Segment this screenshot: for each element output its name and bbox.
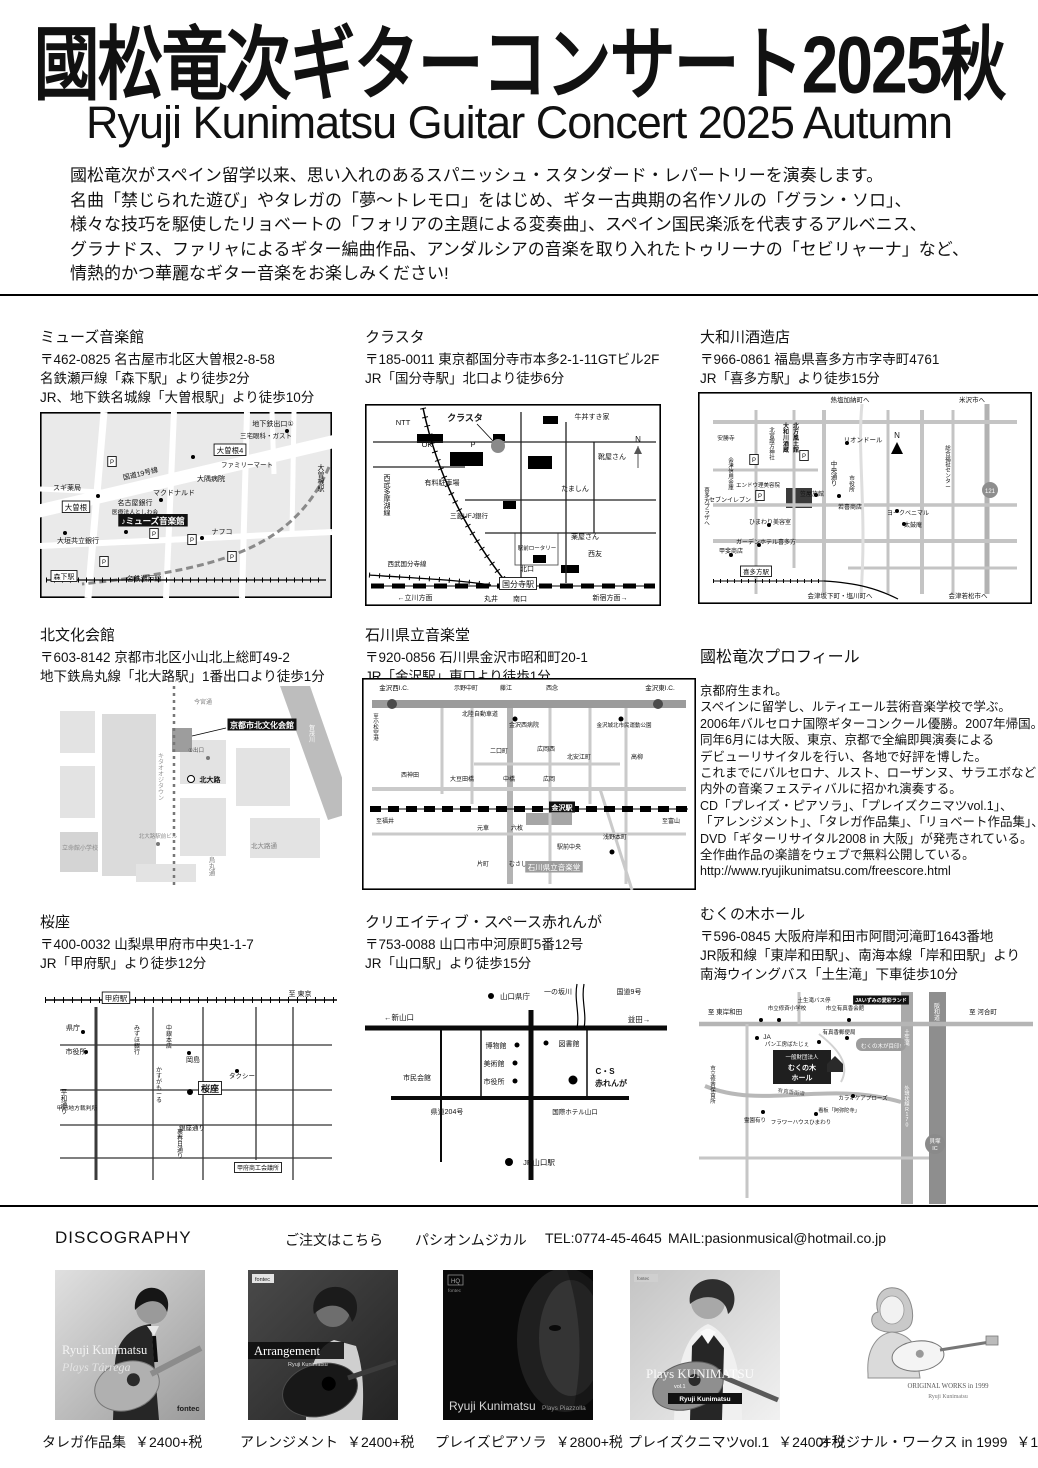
svg-text:むくの木: むくの木 — [788, 1063, 817, 1072]
svg-text:市役所: 市役所 — [484, 1077, 505, 1086]
svg-text:名鉄瀬戸線: 名鉄瀬戸線 — [127, 574, 162, 583]
svg-text:六枚: 六枚 — [511, 824, 523, 832]
svg-text:OK: OK — [422, 440, 433, 449]
svg-text:安勝寺: 安勝寺 — [717, 434, 735, 442]
venue-access: JR、地下鉄名城線「大曽根駅」より徒歩10分 — [40, 388, 355, 407]
svg-text:熱塩加納町へ: 熱塩加納町へ — [831, 395, 871, 404]
svg-text:北大路通: 北大路通 — [251, 841, 278, 850]
svg-text:牛丼すき家: 牛丼すき家 — [575, 412, 610, 421]
svg-text:北陸自動車道: 北陸自動車道 — [462, 710, 498, 718]
svg-text:♪ミューズ音楽館: ♪ミューズ音楽館 — [121, 516, 185, 526]
map-clasta: NTTクラスタ牛丼すき家OKP靴屋さんN有料駐車場たましん西武多摩湖線三菱UFJ… — [365, 404, 661, 606]
svg-text:喜多方駅: 喜多方駅 — [743, 567, 770, 576]
cd-title: タレガ作品集 — [42, 1434, 126, 1450]
cover-artist: Ryuji Kunimatsu — [62, 1343, 148, 1357]
svg-text:金沢西病院: 金沢西病院 — [509, 721, 539, 729]
svg-text:今宮通: 今宮通 — [194, 698, 212, 706]
svg-text:スギ薬局: スギ薬局 — [53, 483, 81, 492]
svg-text:山口県庁: 山口県庁 — [500, 991, 530, 1001]
svg-text:看板「阿弥陀寺」: 看板「阿弥陀寺」 — [818, 1106, 860, 1114]
svg-text:南口: 南口 — [513, 594, 527, 603]
svg-text:一般財団法人: 一般財団法人 — [785, 1053, 819, 1061]
cd-price: ￥2400+税 — [347, 1434, 414, 1450]
svg-text:市民会館: 市民会館 — [403, 1073, 431, 1082]
svg-text:至 東京: 至 東京 — [289, 989, 312, 998]
intro-paragraph: 國松竜次がスペイン留学以来、思い入れのあるスパニッシュ・スタンダード・レパートリ… — [70, 164, 969, 287]
svg-text:市役所: 市役所 — [66, 1047, 87, 1056]
svg-text:会津若松市へ: 会津若松市へ — [949, 591, 989, 600]
profile-line: 同年6月には大阪、東京、京都で全編即興演奏による — [700, 732, 1038, 748]
svg-text:駅前中央: 駅前中央 — [557, 843, 581, 851]
svg-text:エンドウ理美容院: エンドウ理美容院 — [736, 481, 781, 489]
cd-caption: プレイズクニマツvol.1￥2400+税 — [628, 1432, 845, 1452]
svg-text:岡島: 岡島 — [186, 1055, 200, 1064]
intro-line: 様々な技巧を駆使したリョベートの「フォリアの主題による変奏曲」、スペイン国民楽派… — [70, 213, 969, 238]
cd-caption: プレイズピアソラ￥2800+税 — [435, 1432, 623, 1452]
svg-text:パン工房ばたじぇ: パン工房ばたじぇ — [765, 1040, 809, 1048]
profile-section: 國松竜次プロフィール 京都府生まれ。 スペインに留学し、ルティエール芸術音楽学校… — [700, 643, 1038, 880]
svg-text:IC: IC — [932, 1146, 938, 1152]
svg-text:ひまわり美容室: ひまわり美容室 — [749, 518, 791, 526]
svg-text:国際ホテル山口: 国際ホテル山口 — [552, 1107, 598, 1116]
profile-line: これまでにバルセロナ、ルスト、ローザンヌ、サラエボなど — [700, 765, 1038, 781]
cover-title: Plays Piazzolla — [542, 1405, 586, 1412]
svg-text:一の坂川: 一の坂川 — [544, 987, 572, 996]
svg-text:フラワーハウスひまわり: フラワーハウスひまわり — [771, 1118, 831, 1126]
svg-text:至 東岸和田: 至 東岸和田 — [708, 1007, 742, 1016]
svg-text:カラオケアプローズ: カラオケアプローズ — [838, 1094, 888, 1102]
svg-text:ファミリーマート: ファミリーマート — [221, 461, 273, 469]
cover-artist: Ryuji Kunimatsu — [679, 1396, 730, 1403]
venue-name: クラスタ — [365, 326, 680, 347]
svg-text:至小松空港: 至小松空港 — [373, 713, 379, 742]
tel-text: TEL:0774-45-4645 — [545, 1230, 662, 1246]
svg-text:土生滝バス停: 土生滝バス停 — [797, 996, 831, 1004]
divider-bottom — [0, 1205, 1038, 1207]
svg-text:有料駐車場: 有料駐車場 — [425, 478, 460, 487]
svg-text:三菱UFJ銀行: 三菱UFJ銀行 — [450, 511, 488, 520]
venue-access: JR「山口駅」より徒歩15分 — [365, 954, 680, 973]
cd-cover-original-works: ORIGINAL WORKS in 1999 Ryuji Kunimatsu — [820, 1270, 1010, 1420]
intro-line: グラナドス、ファリャによるギター編曲作品、アンダルシアの音楽を取り入れたトゥリー… — [70, 238, 969, 263]
svg-text:マクドナルド: マクドナルド — [153, 489, 195, 497]
svg-text:北安江町: 北安江町 — [567, 753, 591, 761]
svg-text:至 河合町: 至 河合町 — [969, 1007, 997, 1016]
svg-text:セブンイレブン: セブンイレブン — [709, 496, 751, 504]
svg-text:タクシー: タクシー — [229, 1071, 255, 1080]
svg-text:立命館小学校: 立命館小学校 — [62, 844, 98, 852]
svg-text:N: N — [635, 435, 641, 444]
venue-ishikawa-ongakudo: 石川県立音楽堂 〒920-0856 石川県金沢市昭和町20-1 JR「金沢駅」東… — [365, 624, 680, 686]
svg-text:甲府地方裁判所: 甲府地方裁判所 — [57, 1104, 98, 1112]
svg-text:P: P — [230, 555, 234, 561]
svg-text:元車: 元車 — [477, 824, 489, 832]
svg-text:西友: 西友 — [588, 549, 602, 558]
svg-text:大和川酒蔵: 大和川酒蔵 — [782, 422, 789, 454]
venue-name: 石川県立音楽堂 — [365, 624, 680, 645]
cd-cover-plays-tarrega: Ryuji Kunimatsu Plays Tárrega fontec — [55, 1270, 205, 1420]
svg-text:国分寺駅: 国分寺駅 — [502, 580, 534, 589]
svg-text:至富山: 至富山 — [662, 817, 680, 825]
svg-text:北方風土館: 北方風土館 — [792, 422, 799, 454]
svg-text:金沢城北市民運動公園: 金沢城北市民運動公園 — [596, 721, 652, 729]
svg-text:P: P — [752, 458, 756, 464]
cover-title: Arrangement — [254, 1344, 320, 1358]
venue-name: 桜座 — [40, 911, 355, 932]
svg-text:二口町: 二口町 — [490, 748, 508, 755]
profile-line: 京都府生まれ。 — [700, 683, 1038, 699]
svg-text:博物館: 博物館 — [486, 1041, 507, 1050]
venue-access: JR阪和線「東岸和田駅」、南海本線「岸和田駅」より — [700, 946, 1038, 965]
cd-title: アレンジメント — [240, 1434, 338, 1450]
svg-text:県道204号: 県道204号 — [431, 1107, 464, 1116]
svg-text:JA: JA — [763, 1034, 771, 1041]
venue-address: 〒462-0825 名古屋市北区大曽根2-8-58 — [40, 350, 355, 369]
svg-text:賀茂川: 賀茂川 — [309, 724, 315, 744]
svg-text:喜多方プラザへ: 喜多方プラザへ — [704, 486, 710, 527]
discography-heading: DISCOGRAPHY — [55, 1228, 192, 1248]
cover-artist: Ryuji Kunimatsu — [288, 1362, 328, 1368]
svg-text:北大路: 北大路 — [200, 775, 222, 784]
fontec-logo: fontec — [448, 1288, 462, 1294]
svg-text:大垣共立銀行: 大垣共立銀行 — [57, 536, 99, 545]
fontec-logo: fontec — [637, 1276, 650, 1281]
svg-text:むさし: むさし — [509, 861, 527, 868]
svg-text:石川県立音楽堂: 石川県立音楽堂 — [528, 862, 581, 872]
svg-text:←立川方面: ←立川方面 — [398, 593, 433, 602]
fontec-logo: fontec — [177, 1404, 200, 1413]
svg-text:P: P — [102, 560, 106, 566]
svg-text:P: P — [190, 538, 194, 544]
svg-text:地下鉄出口①: 地下鉄出口① — [252, 419, 293, 428]
venue-address: 〒603-8142 京都市北区小山北上総町49-2 — [40, 648, 355, 667]
venue-access: JR「喜多方駅」より徒歩15分 — [700, 369, 1035, 388]
svg-text:市立修斉小学校: 市立修斉小学校 — [768, 1004, 807, 1012]
svg-text:JAいずみの愛彩ランド: JAいずみの愛彩ランド — [855, 997, 906, 1004]
svg-text:総合福祉センター: 総合福祉センター — [945, 444, 951, 491]
svg-text:クラスタ: クラスタ — [447, 412, 483, 423]
svg-text:キタオオジタウン: キタオオジタウン — [158, 754, 164, 802]
venue-access: 地下鉄烏丸線「北大路駅」1番出口より徒歩1分 — [40, 667, 355, 686]
cover-title: ORIGINAL WORKS in 1999 — [908, 1383, 990, 1390]
svg-text:P: P — [470, 440, 475, 449]
svg-text:西神田: 西神田 — [401, 771, 419, 779]
svg-text:北口: 北口 — [520, 565, 534, 573]
venue-name: 北文化会館 — [40, 624, 355, 645]
svg-text:P: P — [152, 532, 156, 538]
svg-text:桜座: 桜座 — [201, 1083, 219, 1094]
cd-title: オリジナル・ワークス in 1999 — [818, 1434, 1007, 1450]
fontec-logo: fontec — [255, 1277, 270, 1283]
venue-name: むくの木ホール — [700, 903, 1038, 924]
divider-top — [0, 294, 1038, 296]
profile-line: 「アレンジメント」、「タレガ作品集」、「リョベート作品集」、 — [700, 814, 1038, 830]
venue-address: 〒400-0032 山梨県甲府市中央1-1-7 — [40, 935, 355, 954]
intro-line: 名曲「禁じられた遊び」やタレガの「夢〜トレモロ」をはじめ、ギター古典期の名作ソル… — [70, 189, 969, 214]
svg-text:みずほ銀行: みずほ銀行 — [134, 1025, 140, 1056]
svg-text:リオンドール: リオンドール — [844, 436, 884, 444]
venue-kita-bunka: 北文化会館 〒603-8142 京都市北区小山北上総町49-2 地下鉄烏丸線「北… — [40, 624, 355, 686]
venue-akarenga: クリエイティブ・スペース赤れんが 〒753-0088 山口市中河原町5番12号 … — [365, 911, 680, 973]
svg-text:烏丸通: 烏丸通 — [209, 855, 216, 877]
svg-text:P: P — [110, 460, 114, 466]
svg-text:米沢市へ: 米沢市へ — [959, 395, 986, 404]
svg-text:藤江: 藤江 — [500, 684, 512, 692]
svg-text:C・S: C・S — [595, 1067, 615, 1076]
svg-text:示野中町: 示野中町 — [454, 684, 478, 692]
svg-text:金沢東I.C.: 金沢東I.C. — [645, 683, 675, 692]
svg-text:市役所: 市役所 — [849, 474, 855, 494]
svg-text:大豆田橋: 大豆田橋 — [450, 775, 474, 783]
svg-text:会津信用金庫: 会津信用金庫 — [728, 456, 734, 492]
svg-text:土生滝: 土生滝 — [904, 1028, 910, 1047]
svg-text:有真香郵便局: 有真香郵便局 — [822, 1028, 855, 1036]
map-sakuraza: 甲府駅至 東京県庁市役所みずほ銀行中銀本店岡島かすがもーるタクシー桜座平和通り甲… — [40, 982, 342, 1186]
svg-text:中央通り: 中央通り — [831, 459, 838, 488]
svg-text:大曽根4: 大曽根4 — [217, 445, 244, 455]
cd-price: ￥2400+税 — [135, 1434, 202, 1450]
svg-text:若喜商店: 若喜商店 — [838, 503, 862, 511]
venue-address: 〒185-0011 東京都国分寺市本多2-1-11GTビル2F — [365, 350, 680, 369]
svg-text:裏春日通り: 裏春日通り — [177, 1128, 183, 1160]
cd-caption: アレンジメント￥2400+税 — [240, 1432, 414, 1452]
map-muse: 地下鉄出口①三宅眼科・ガスト大曽根4大曽根駅ファミリーマート国道19号線大隅病院… — [40, 412, 332, 598]
intro-line: 情熱的かつ華麗なギター音楽をお楽しみください! — [70, 262, 969, 287]
venue-muse: ミューズ音楽館 〒462-0825 名古屋市北区大曽根2-8-58 名鉄瀬戸線「… — [40, 326, 355, 407]
svg-text:至福井: 至福井 — [376, 817, 394, 825]
svg-text:京都市北文化会館: 京都市北文化会館 — [230, 720, 294, 730]
map-kita-bunka: 今宮通京都市北文化会館①出口北大路キタオオジタウン立命館小学校北大路駅前ビル北大… — [40, 686, 342, 888]
svg-text:金沢駅: 金沢駅 — [551, 803, 574, 812]
svg-text:阪和道: 阪和道 — [934, 1002, 940, 1022]
svg-text:大曽根駅: 大曽根駅 — [318, 463, 325, 493]
eye — [549, 1325, 561, 1331]
flyer-page: { "header": { "title_ja": "國松竜次ギターコンサート2… — [0, 0, 1038, 1468]
cd-title: プレイズクニマツvol.1 — [628, 1434, 769, 1450]
svg-text:大隅病院: 大隅病院 — [197, 474, 225, 483]
cover-title: Plays Tárrega — [61, 1360, 131, 1374]
cover-subtitle: vol.1 — [674, 1384, 686, 1390]
map-akarenga: 山口県庁一の坂川国道9号←新山口益田→博物館図書館美術館市役所市民会館C・S赤れ… — [365, 982, 667, 1186]
svg-text:丸井: 丸井 — [484, 594, 498, 603]
venue-mukunoki: むくの木ホール 〒596-0845 大阪府岸和田市阿間河滝町1643番地 JR阪… — [700, 903, 1038, 984]
svg-text:美術館: 美術館 — [484, 1059, 505, 1068]
svg-text:西武多摩湖線: 西武多摩湖線 — [384, 474, 391, 517]
svg-text:121: 121 — [985, 489, 996, 495]
venue-access: JR「国分寺駅」北口より徒歩6分 — [365, 369, 680, 388]
profile-line: 内外の音楽フェスティバルに招かれ演奏する。 — [700, 781, 1038, 797]
cd-caption: オリジナル・ワークス in 1999￥1000 — [818, 1432, 1038, 1452]
svg-text:県庁: 県庁 — [66, 1023, 80, 1032]
map-ishikawa-ongakudo: 金沢西I.C.示野中町藤江西念金沢東I.C.北陸自動車道金沢西病院金沢城北市民運… — [362, 678, 696, 890]
cd-price: ￥2800+税 — [556, 1434, 623, 1450]
cd-title: プレイズピアソラ — [435, 1434, 547, 1450]
cd-caption: タレガ作品集￥2400+税 — [42, 1432, 202, 1452]
svg-text:薬屋さん: 薬屋さん — [571, 532, 599, 541]
svg-text:北宮諏方神社: 北宮諏方神社 — [769, 426, 775, 462]
svg-text:P: P — [758, 494, 762, 500]
profile-url: http://www.ryujikunimatsu.com/freescore.… — [700, 863, 1038, 879]
svg-text:甲斐商店: 甲斐商店 — [719, 547, 743, 555]
svg-text:ナフコ: ナフコ — [212, 528, 233, 536]
venue-clasta: クラスタ 〒185-0011 東京都国分寺市本多2-1-11GTビル2F JR「… — [365, 326, 680, 388]
venue-access: 名鉄瀬戸線「森下駅」より徒歩2分 — [40, 369, 355, 388]
venue-access: 南海ウイングバス「土生滝」下車徒歩10分 — [700, 965, 1038, 984]
venue-sakuraza: 桜座 〒400-0032 山梨県甲府市中央1-1-7 JR「甲府駅」より徒歩12… — [40, 911, 355, 973]
svg-text:西念: 西念 — [546, 684, 558, 692]
cover-artist: Ryuji Kunimatsu — [449, 1399, 536, 1413]
svg-text:市立有真香会館: 市立有真香会館 — [826, 1004, 865, 1012]
svg-text:ヨークベニマル: ヨークベニマル — [887, 510, 929, 517]
map-yamatogawa: 熱塩加納町へ米沢市へ安勝寺北宮諏方神社大和川酒蔵北方風土館リオンドールN総合福祉… — [698, 392, 1032, 604]
profile-line: DVD「ギターリサイタル2008 in 大阪」が発売されている。 — [700, 831, 1038, 847]
cover-title: Plays KUNIMATSU — [646, 1366, 755, 1381]
svg-text:ガーデンホテル喜多方: ガーデンホテル喜多方 — [736, 538, 796, 546]
svg-text:たましん: たましん — [561, 485, 589, 493]
profile-line: デビューリサイタルを行い、各地で好評を博した。 — [700, 749, 1038, 765]
venue-name: 大和川酒造店 — [700, 326, 1035, 347]
venue-address: 〒966-0861 福島県喜多方市字寺町4761 — [700, 350, 1035, 369]
cover-artist: Ryuji Kunimatsu — [928, 1394, 968, 1400]
mail-text: MAIL:pasionmusical@hotmail.co.jp — [668, 1230, 886, 1246]
svg-text:太鼓庵: 太鼓庵 — [904, 521, 922, 529]
cd-cover-plays-piazzolla: HQ fontec Ryuji Kunimatsu Plays Piazzoll… — [443, 1270, 593, 1420]
svg-text:貝塚: 貝塚 — [929, 1137, 941, 1145]
svg-text:霊園有り: 霊園有り — [744, 1116, 766, 1124]
svg-text:広岡西: 広岡西 — [537, 745, 555, 753]
profile-title: 國松竜次プロフィール — [700, 643, 1038, 667]
svg-text:NTT: NTT — [396, 418, 411, 427]
cd-cover-plays-kunimatsu: Plays KUNIMATSU vol.1 Ryuji Kunimatsu fo… — [630, 1270, 780, 1420]
svg-text:片町: 片町 — [477, 860, 489, 868]
profile-line: CD「プレイズ・ピアソラ」、「プレイズクニマツvol.1」、 — [700, 798, 1038, 814]
venue-yamatogawa: 大和川酒造店 〒966-0861 福島県喜多方市字寺町4761 JR「喜多方駅」… — [700, 326, 1035, 388]
venue-address: 〒596-0845 大阪府岸和田市阿間河滝町1643番地 — [700, 927, 1038, 946]
svg-text:名古屋銀行: 名古屋銀行 — [118, 498, 153, 507]
svg-text:JR山口駅: JR山口駅 — [523, 1157, 555, 1167]
page-subtitle-en: Ryuji Kunimatsu Guitar Concert 2025 Autu… — [0, 97, 1038, 149]
svg-text:会津坂下町・塩川町へ: 会津坂下町・塩川町へ — [808, 591, 874, 600]
map-mukunoki: 至 東岸和田JA市立修斉小学校市立有真香会館有真香郵便局パン工房ばたじぇ土生滝バ… — [699, 992, 1033, 1204]
svg-text:駅前ロータリー: 駅前ロータリー — [518, 544, 557, 552]
svg-text:むくの木が目印!: むくの木が目印! — [861, 1042, 902, 1050]
svg-text:甲府駅: 甲府駅 — [105, 993, 128, 1003]
svg-text:益田→: 益田→ — [628, 1014, 651, 1024]
profile-line: スペインに留学し、ルティエール芸術音楽学校で学ぶ。 — [700, 699, 1038, 715]
svg-text:三宅眼科・ガスト: 三宅眼科・ガスト — [240, 431, 292, 440]
svg-text:市立修斉保育所: 市立修斉保育所 — [710, 1064, 716, 1105]
svg-text:大曽根: 大曽根 — [65, 502, 88, 512]
order-label: ご注文はこちら — [285, 1230, 383, 1250]
svg-text:新宿方面→: 新宿方面→ — [593, 593, 628, 602]
svg-text:N: N — [894, 431, 900, 440]
svg-text:赤れんが: 赤れんが — [595, 1078, 628, 1088]
hq-logo: HQ — [451, 1279, 460, 1285]
venue-address: 〒920-0856 石川県金沢市昭和町20-1 — [365, 648, 680, 667]
svg-text:国道9号: 国道9号 — [617, 987, 642, 996]
svg-text:北大路駅前ビル: 北大路駅前ビル — [139, 832, 178, 840]
cd-cover-arrangement: Arrangement Ryuji Kunimatsu fontec — [248, 1270, 398, 1420]
svg-text:←新山口: ←新山口 — [384, 1012, 414, 1022]
tie — [154, 1336, 156, 1362]
intro-line: 國松竜次がスペイン留学以来、思い入れのあるスパニッシュ・スタンダード・レパートリ… — [70, 164, 969, 189]
svg-text:金沢西I.C.: 金沢西I.C. — [379, 683, 409, 692]
svg-text:広岡: 広岡 — [543, 775, 555, 783]
profile-line: 全作曲作品の楽譜をウェブで無料公開している。 — [700, 847, 1038, 863]
cd-price: ￥1000 — [1016, 1434, 1038, 1450]
venue-name: ミューズ音楽館 — [40, 326, 355, 347]
svg-text:靴屋さん: 靴屋さん — [598, 452, 626, 461]
venue-name: クリエイティブ・スペース赤れんが — [365, 911, 680, 932]
svg-text:笠屋旅館: 笠屋旅館 — [800, 490, 824, 498]
svg-text:森下駅: 森下駅 — [54, 572, 75, 581]
svg-text:①出口: ①出口 — [188, 746, 204, 754]
svg-text:西武国分寺線: 西武国分寺線 — [388, 559, 428, 568]
profile-line: 2006年バルセロナ国際ギターコンクール優勝。2007年帰国。 — [700, 716, 1038, 732]
svg-text:中銀本店: 中銀本店 — [166, 1024, 172, 1050]
svg-text:高柳: 高柳 — [631, 753, 643, 761]
venue-address: 〒753-0088 山口市中河原町5番12号 — [365, 935, 680, 954]
svg-text:ホール: ホール — [792, 1074, 813, 1082]
svg-text:かすがもーる: かすがもーる — [156, 1067, 162, 1104]
shop-name: パシオンムジカル — [415, 1230, 527, 1250]
svg-text:P: P — [802, 454, 806, 460]
svg-text:中橋: 中橋 — [503, 775, 515, 783]
svg-text:図書館: 図書館 — [559, 1039, 580, 1048]
svg-text:浅野本町: 浅野本町 — [603, 833, 627, 841]
venue-access: JR「甲府駅」より徒歩12分 — [40, 954, 355, 973]
svg-text:甲府商工会議所: 甲府商工会議所 — [237, 1164, 279, 1172]
